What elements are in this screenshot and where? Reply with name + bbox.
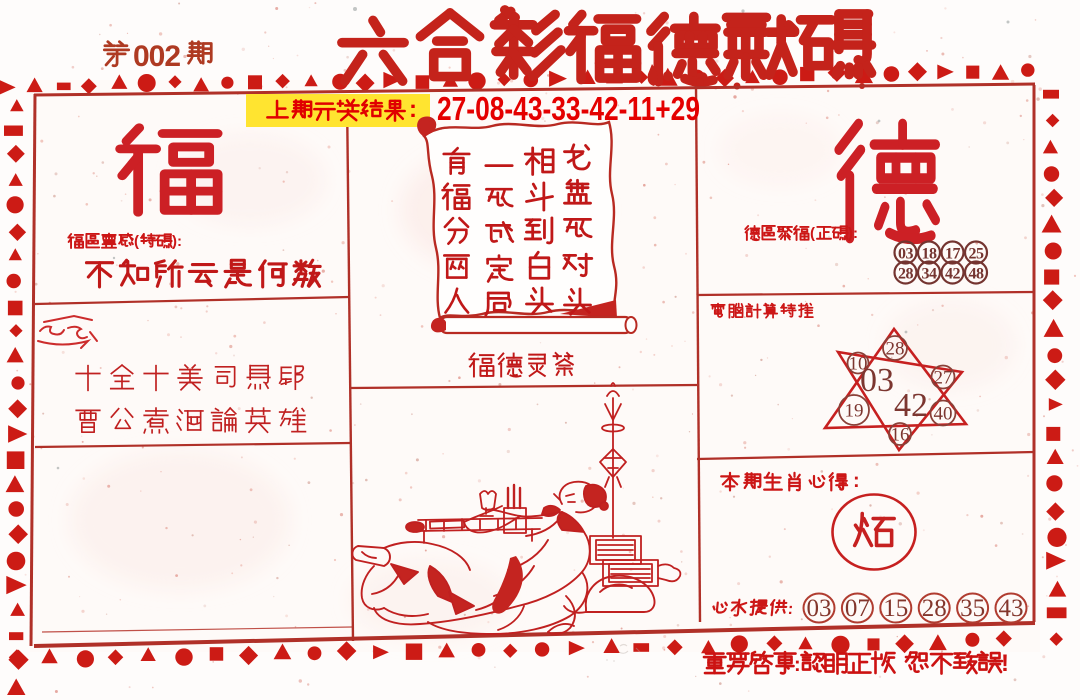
svg-text::: :	[794, 654, 801, 676]
svg-text:43: 43	[999, 595, 1024, 622]
svg-text:03: 03	[860, 362, 894, 399]
svg-text:17: 17	[945, 246, 961, 263]
svg-text:):: ):	[172, 233, 182, 250]
svg-text:48: 48	[969, 266, 985, 283]
svg-text:18: 18	[922, 246, 938, 263]
svg-text:002: 002	[133, 40, 180, 73]
svg-text:35: 35	[960, 595, 985, 622]
svg-text:27: 27	[934, 368, 953, 389]
svg-text:16: 16	[891, 425, 910, 446]
svg-text:42: 42	[945, 266, 961, 283]
svg-text:(: (	[810, 225, 815, 242]
svg-text:28: 28	[898, 266, 914, 283]
svg-text:03: 03	[807, 595, 832, 622]
svg-text::: :	[409, 96, 417, 123]
svg-text:(: (	[134, 233, 139, 250]
svg-text:40: 40	[934, 404, 953, 425]
svg-text:):: ):	[848, 225, 858, 242]
svg-text:28: 28	[922, 595, 947, 622]
svg-text:03: 03	[898, 246, 914, 263]
svg-text:34: 34	[922, 266, 938, 283]
svg-text:15: 15	[883, 595, 908, 622]
svg-text:!: !	[1001, 650, 1009, 677]
svg-text::: :	[853, 470, 860, 492]
svg-text:07: 07	[845, 595, 870, 622]
svg-text:42: 42	[894, 387, 928, 424]
svg-text:19: 19	[845, 401, 864, 422]
svg-text:25: 25	[969, 246, 985, 263]
svg-text:28: 28	[886, 339, 905, 360]
